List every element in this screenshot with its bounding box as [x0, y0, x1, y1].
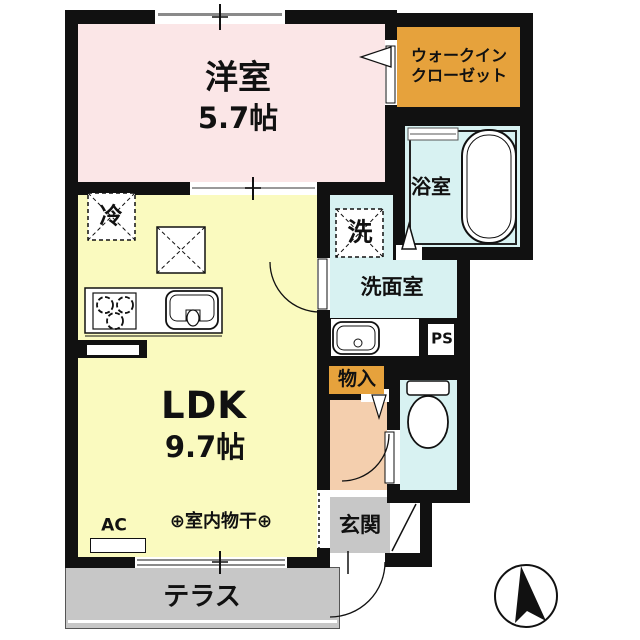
room-toilet	[400, 380, 457, 490]
wall-wic-bath	[393, 107, 533, 126]
wall-top-west	[65, 10, 155, 24]
door-gap-wic	[385, 40, 397, 105]
ac-label: AC	[101, 515, 127, 536]
fridge-label: 冷	[100, 203, 123, 232]
wall-right-upper	[520, 13, 533, 260]
door-gap-bath	[396, 245, 422, 260]
walkin-closet-label: ウォークイン クローゼット	[411, 46, 507, 86]
wall-mid-vertical	[317, 195, 330, 490]
western-room-label: 洋室	[205, 56, 271, 97]
kitchen-stub-wall	[78, 340, 147, 358]
room-hall	[330, 397, 387, 490]
terrace-label: テラス	[163, 581, 240, 614]
western-room-size: 5.7帖	[198, 100, 278, 136]
wall-toilet-north	[390, 368, 470, 380]
storage-label: 物入	[338, 368, 376, 392]
ac-unit-box	[90, 538, 146, 553]
terrace-bottom-line	[68, 620, 337, 623]
window-western-top	[155, 10, 285, 24]
entrance-label: 玄関	[339, 512, 381, 538]
wall-top-east	[285, 10, 397, 24]
room-ldk	[78, 195, 317, 557]
ldk-label: LDK	[161, 383, 247, 429]
washroom-label: 洗面室	[361, 274, 424, 300]
walkin-closet-line2: クローゼット	[411, 66, 507, 86]
ps-label: PS	[431, 330, 453, 349]
north-arrow-icon	[495, 565, 557, 627]
door-gap-western-ldk	[190, 182, 317, 195]
wall-porch-south	[385, 553, 432, 567]
door-gap-washroom	[317, 258, 330, 310]
wall-left	[65, 10, 78, 567]
ldk-size: 9.7帖	[165, 429, 245, 465]
bathroom-label: 浴室	[411, 175, 451, 200]
vanity-counter	[330, 318, 420, 357]
indoor-drying-label: ⊕室内物干⊕	[170, 511, 272, 534]
wall-wic-top	[385, 13, 533, 27]
wall-porch-east	[420, 502, 432, 555]
walkin-closet-line1: ウォークイン	[411, 46, 507, 66]
window-ldk-bottom	[135, 557, 287, 568]
washer-label: 洗	[347, 216, 372, 247]
door-gap-toilet	[387, 430, 400, 484]
floor-plan: 洋室 5.7帖 ウォークイン クローゼット 浴室 洗 洗面室 PS 物入 LDK…	[0, 0, 640, 640]
